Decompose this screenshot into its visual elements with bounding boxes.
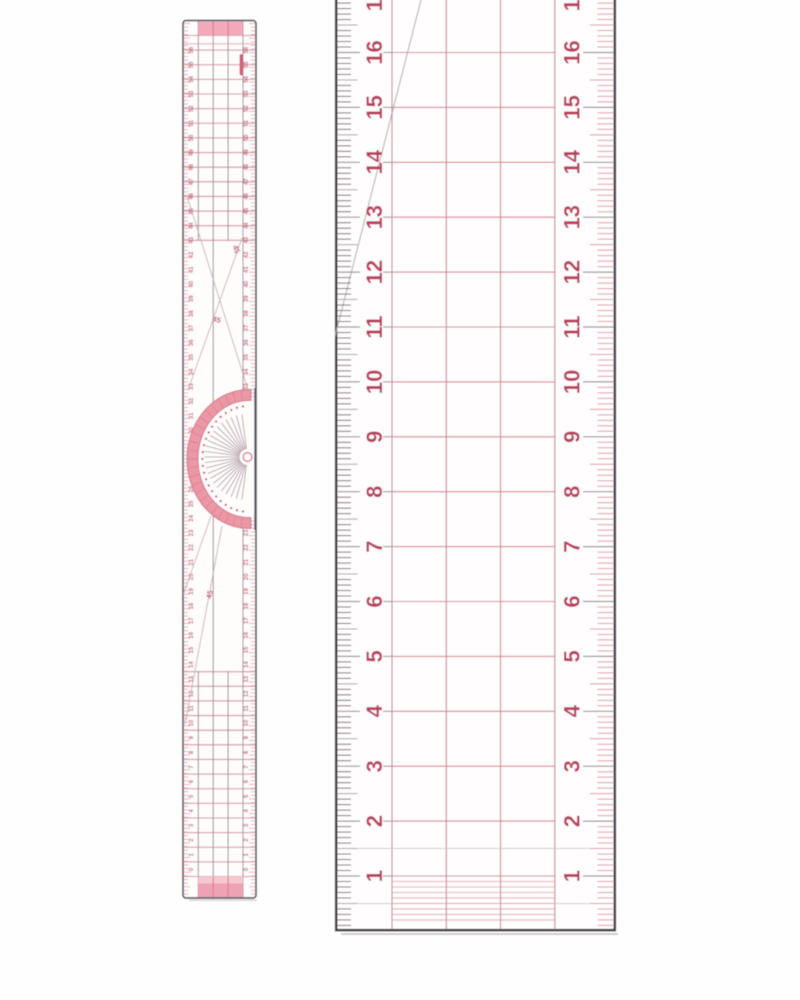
- svg-text:51: 51: [244, 119, 250, 126]
- svg-text:1: 1: [560, 870, 585, 882]
- svg-text:18: 18: [189, 602, 195, 609]
- svg-text:22: 22: [244, 544, 250, 551]
- svg-text:18: 18: [244, 602, 250, 609]
- svg-text:15: 15: [362, 95, 387, 119]
- svg-text:49: 49: [189, 149, 195, 156]
- svg-text:13: 13: [560, 205, 585, 229]
- svg-text:7: 7: [560, 540, 585, 552]
- svg-text:52: 52: [189, 105, 195, 112]
- svg-text:50: 50: [244, 134, 250, 141]
- svg-text:46: 46: [189, 192, 195, 199]
- svg-text:6: 6: [560, 595, 585, 607]
- svg-text:17: 17: [362, 0, 387, 11]
- svg-text:9: 9: [362, 431, 387, 443]
- svg-text:19: 19: [244, 587, 250, 594]
- svg-text:56: 56: [189, 46, 195, 53]
- svg-text:42: 42: [189, 251, 195, 258]
- svg-text:10: 10: [244, 719, 250, 726]
- svg-text:54: 54: [244, 75, 250, 82]
- svg-text:7: 7: [362, 540, 387, 552]
- svg-text:11: 11: [244, 705, 250, 712]
- svg-text:12: 12: [244, 690, 250, 697]
- svg-text:50: 50: [189, 134, 195, 141]
- svg-text:53: 53: [189, 90, 195, 97]
- svg-text:40: 40: [189, 280, 195, 287]
- svg-text:12: 12: [362, 260, 387, 284]
- svg-text:15: 15: [189, 646, 195, 653]
- svg-text:2: 2: [560, 815, 585, 827]
- svg-text:36: 36: [244, 339, 250, 346]
- svg-text:43: 43: [244, 236, 250, 243]
- svg-text:12: 12: [560, 260, 585, 284]
- svg-text:9: 9: [560, 431, 585, 443]
- svg-text:13: 13: [362, 205, 387, 229]
- svg-text:14: 14: [362, 149, 387, 174]
- svg-text:13: 13: [244, 675, 250, 682]
- svg-text:31: 31: [189, 412, 195, 419]
- svg-text:10: 10: [362, 370, 387, 394]
- svg-text:16: 16: [362, 40, 387, 64]
- svg-text:39: 39: [244, 295, 250, 302]
- svg-text:8: 8: [362, 486, 387, 498]
- svg-text:55: 55: [244, 61, 250, 68]
- svg-text:16: 16: [560, 40, 585, 64]
- svg-text:8: 8: [560, 486, 585, 498]
- svg-text:48: 48: [244, 163, 250, 170]
- svg-text:56: 56: [244, 46, 250, 53]
- svg-text:41: 41: [189, 266, 195, 273]
- svg-text:25: 25: [189, 500, 195, 507]
- svg-text:15: 15: [560, 95, 585, 119]
- svg-text:2: 2: [362, 815, 387, 827]
- svg-text:44: 44: [189, 222, 195, 229]
- svg-text:37: 37: [244, 324, 250, 331]
- svg-text:49: 49: [244, 149, 250, 156]
- svg-text:11: 11: [362, 315, 387, 338]
- svg-text:40: 40: [244, 280, 250, 287]
- svg-text:14: 14: [560, 149, 585, 174]
- svg-text:14: 14: [189, 661, 195, 668]
- svg-text:38: 38: [189, 310, 195, 317]
- svg-text:4: 4: [362, 704, 387, 717]
- svg-text:4: 4: [560, 704, 585, 717]
- svg-text:5: 5: [560, 650, 585, 662]
- svg-text:3: 3: [560, 760, 585, 772]
- svg-text:21: 21: [244, 558, 250, 565]
- svg-text:10: 10: [560, 370, 585, 394]
- svg-text:45: 45: [244, 207, 250, 214]
- svg-text:24: 24: [189, 514, 195, 521]
- svg-text:17: 17: [189, 617, 195, 624]
- svg-text:44: 44: [244, 222, 250, 229]
- svg-text:35: 35: [244, 353, 250, 360]
- svg-text:19: 19: [189, 587, 195, 594]
- svg-text:23: 23: [189, 529, 195, 536]
- svg-text:17: 17: [244, 617, 250, 624]
- svg-text:39: 39: [189, 295, 195, 302]
- svg-text:55: 55: [189, 61, 195, 68]
- svg-text:11: 11: [189, 705, 195, 712]
- svg-text:3: 3: [362, 760, 387, 772]
- svg-text:36: 36: [189, 339, 195, 346]
- svg-text:47: 47: [244, 178, 250, 185]
- svg-text:1: 1: [362, 870, 387, 882]
- svg-text:38: 38: [244, 310, 250, 317]
- svg-text:42: 42: [244, 251, 250, 258]
- svg-text:34: 34: [244, 368, 250, 375]
- svg-text:14: 14: [244, 661, 250, 668]
- svg-text:54: 54: [189, 75, 195, 82]
- svg-text:51: 51: [189, 119, 195, 126]
- svg-text:22: 22: [189, 544, 195, 551]
- svg-text:17: 17: [560, 0, 585, 11]
- svg-text:6: 6: [362, 595, 387, 607]
- svg-text:11: 11: [560, 315, 585, 338]
- svg-text:43: 43: [189, 236, 195, 243]
- svg-text:41: 41: [244, 266, 250, 273]
- svg-text:15: 15: [244, 646, 250, 653]
- svg-text:20: 20: [244, 573, 250, 580]
- svg-text:10: 10: [189, 719, 195, 726]
- svg-text:16: 16: [244, 631, 250, 638]
- svg-text:37: 37: [189, 324, 195, 331]
- svg-text:32: 32: [189, 397, 195, 404]
- svg-text:48: 48: [189, 163, 195, 170]
- svg-text:52: 52: [244, 105, 250, 112]
- svg-text:47: 47: [189, 178, 195, 185]
- svg-text:16: 16: [189, 631, 195, 638]
- svg-text:5: 5: [362, 650, 387, 662]
- svg-text:23: 23: [244, 529, 250, 536]
- svg-text:35: 35: [189, 353, 195, 360]
- svg-text:46: 46: [244, 192, 250, 199]
- svg-text:53: 53: [244, 90, 250, 97]
